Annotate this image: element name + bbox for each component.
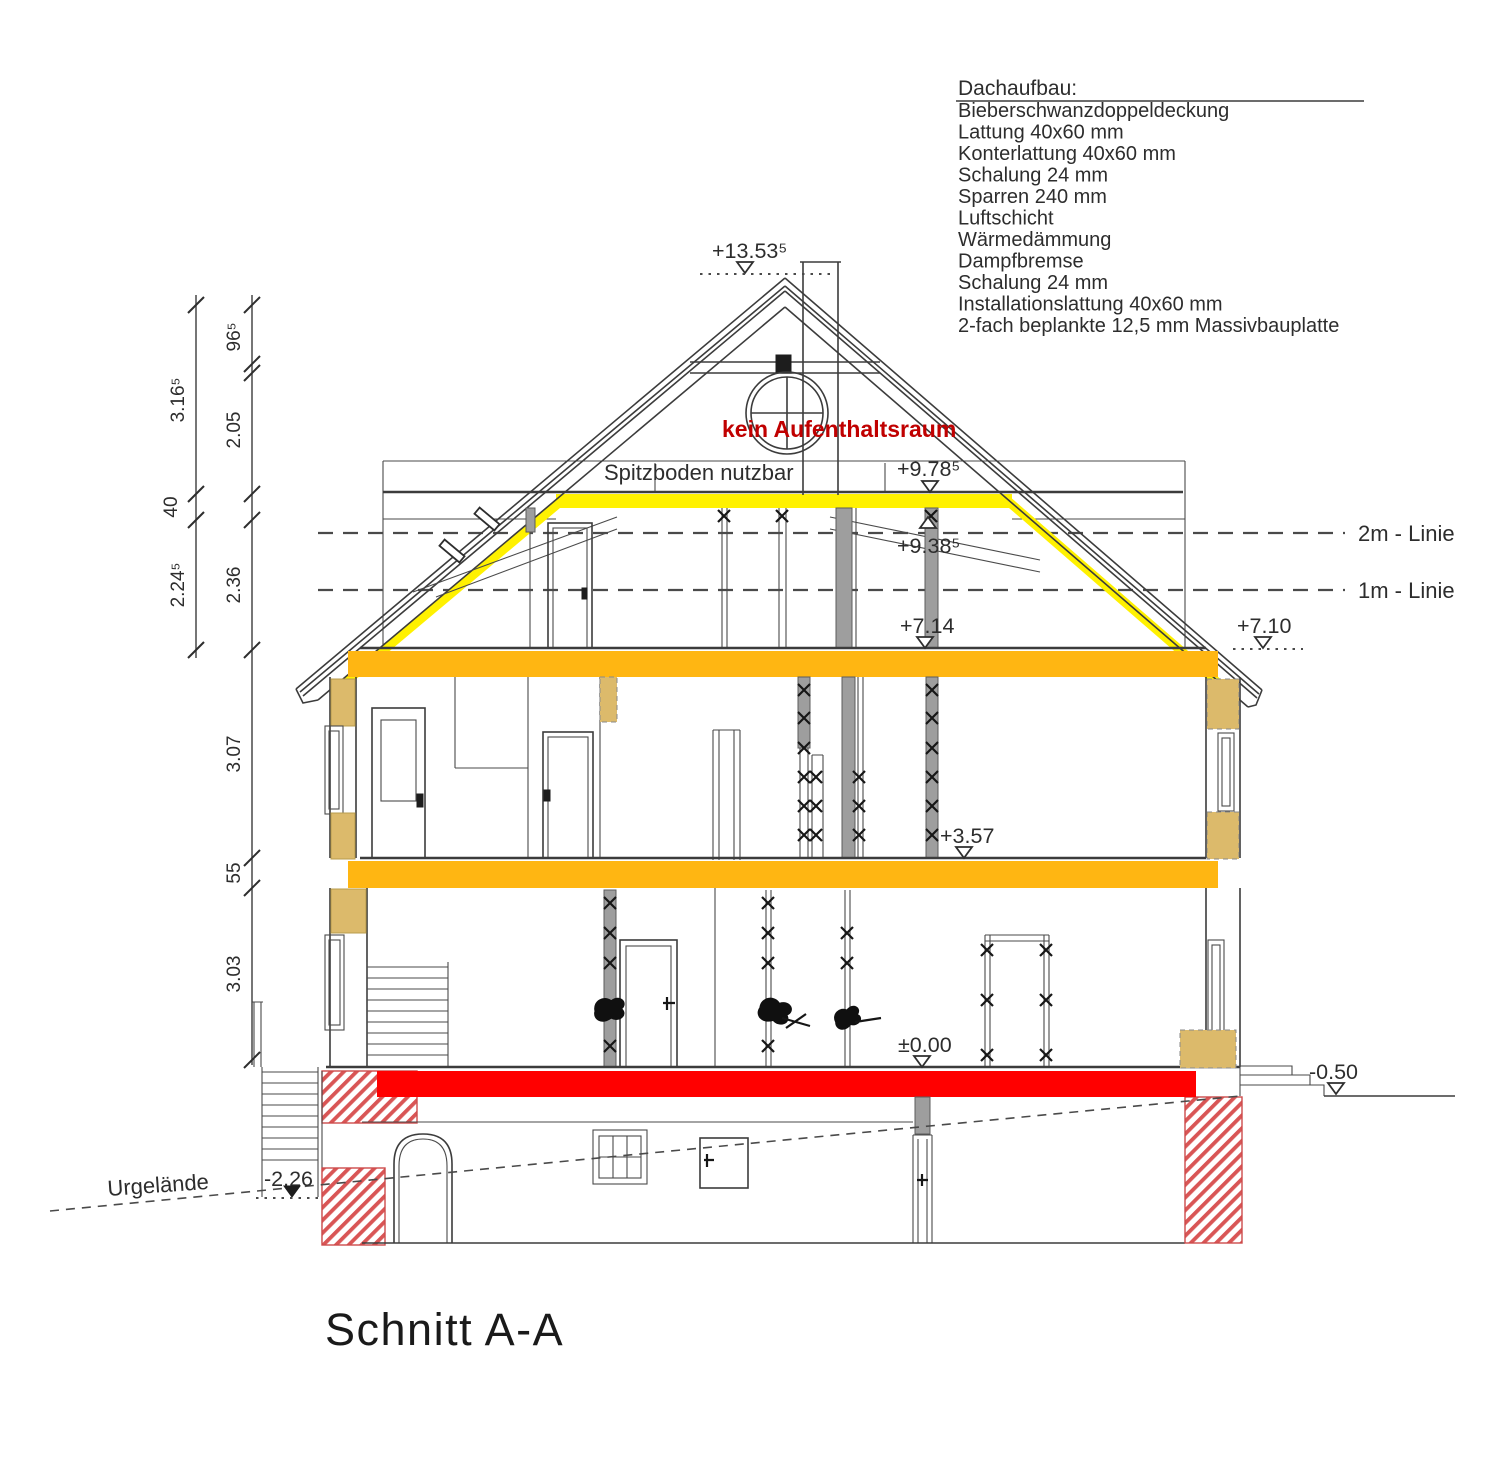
eg-post-1-lines — [766, 890, 771, 1067]
spitzboden-level-marker: +9.78⁵ — [897, 457, 960, 492]
og-right-wall-tan-upper — [1207, 679, 1239, 729]
og-right-wall-tan-lower — [1207, 812, 1239, 859]
og-glazed-door-handle — [417, 794, 423, 807]
dachaufbau-item-3: Konterlattung 40x60 mm — [958, 143, 1176, 165]
og-floor-slab — [348, 861, 1218, 888]
keller-hatch-box-handle — [704, 1154, 714, 1167]
dg-post-x-marks — [718, 510, 937, 522]
dachgeschoss — [526, 508, 938, 648]
keller-arched-door-outer — [394, 1134, 452, 1243]
dg-door-frame — [548, 523, 592, 648]
og-left-wall-tan-upper — [331, 679, 355, 726]
inner-dim-4: 3.07 — [224, 736, 245, 773]
level-triangle-icon — [737, 262, 753, 273]
og-glazed-door-frame — [372, 708, 425, 858]
dg-floor-slab — [348, 651, 1218, 677]
og-open-door-frame — [713, 730, 740, 860]
inner-dim-3: 2.36 — [224, 567, 245, 604]
keller-mid-door — [913, 1135, 932, 1243]
eg-post-2-lines — [845, 890, 850, 1067]
dachaufbau-heading: Dachaufbau: — [958, 77, 1077, 100]
eg-door-handle — [663, 997, 675, 1010]
eg-ink-blob-2 — [756, 995, 793, 1028]
eg-floor — [322, 1067, 1240, 1123]
obergeschoss — [325, 677, 1240, 860]
erdgeschoss — [325, 888, 1240, 1067]
dg-right-level-label: +7.10 — [1237, 614, 1291, 638]
keller-mid-door-handle — [917, 1174, 928, 1186]
level-triangle-icon — [956, 847, 972, 858]
eg-blob-scribbles — [782, 1014, 881, 1028]
og-chimney-section — [842, 677, 855, 858]
og-x-marks — [798, 684, 938, 841]
terrain-right-level-marker: -0.50 — [1309, 1060, 1358, 1094]
og-floor — [348, 858, 1218, 888]
dachaufbau-item-4: Schalung 24 mm — [958, 165, 1108, 187]
level-triangle-icon — [1328, 1083, 1344, 1094]
outer-dim-2: 40 — [161, 496, 182, 517]
inner-dim-5: 55 — [224, 862, 245, 883]
outer-dim-3: 2.24⁵ — [168, 563, 189, 608]
beam-hanger-plate — [776, 355, 791, 373]
dg-floor — [348, 648, 1218, 677]
og-partition-lines — [455, 677, 600, 858]
eg-right-tan-base — [1180, 1030, 1236, 1068]
dachaufbau-item-6: Luftschicht — [958, 208, 1054, 230]
spitzboden-usable-note: Spitzboden nutzbar — [604, 460, 794, 485]
kehlbalken-level-label: +9.38⁵ — [897, 534, 960, 558]
roof-left-outline — [296, 278, 785, 703]
eg-stair — [367, 962, 448, 1067]
dachaufbau-legend: Dachaufbau: Bieberschwanzdoppeldeckung L… — [956, 77, 1364, 337]
dachaufbau-item-2: Lattung 40x60 mm — [958, 122, 1124, 144]
eg-right-window-glass — [1212, 945, 1220, 1035]
background-wall-outline — [383, 461, 1185, 677]
eg-floor-slab — [377, 1071, 1196, 1097]
eg-right-window-frame — [1208, 940, 1224, 1040]
dg-level-marker: +7.14 — [900, 614, 954, 648]
eg-level-label: ±0.00 — [898, 1033, 952, 1057]
og-right-window-frame — [1218, 733, 1234, 811]
one-m-line-label: 1m - Linie — [1358, 578, 1455, 603]
eg-door-leaf — [626, 946, 671, 1067]
original-terrain-line — [50, 1096, 1240, 1211]
ridge-level-marker: +13.53⁵ — [700, 239, 834, 274]
dg-level-label: +7.14 — [900, 614, 954, 638]
keller-entrance-level-marker: -2.26 — [256, 1167, 322, 1198]
og-door-handle — [544, 790, 550, 801]
eg-left-wall-tan — [331, 889, 366, 933]
ridge-level-label: +13.53⁵ — [712, 239, 787, 263]
dg-post-small — [526, 508, 535, 532]
keller-wall-right — [1185, 1097, 1242, 1243]
dachaufbau-item-1: Bieberschwanzdoppeldeckung — [958, 100, 1229, 122]
og-left-wall-tan-lower — [331, 813, 355, 859]
eg-ink-blob-1 — [595, 998, 624, 1021]
section-drawing-sheet: 2m - Linie 1m - Linie kein Aufenthaltsra… — [0, 0, 1500, 1463]
stair-treads — [262, 1072, 318, 1160]
eg-ink-blob-3 — [833, 1005, 863, 1031]
dachaufbau-item-11: 2-fach beplankte 12,5 mm Massivbauplatte — [958, 315, 1339, 337]
terrain-right-level-label: -0.50 — [1309, 1060, 1358, 1084]
og-right-window-glass — [1222, 738, 1230, 806]
dg-right-level-marker: +7.10 — [1233, 614, 1303, 649]
og-left-window-frame — [325, 726, 343, 814]
inner-dim-6: 3.03 — [224, 956, 245, 993]
keller — [322, 1030, 1242, 1245]
og-door-leaf — [548, 737, 588, 858]
dachaufbau-item-9: Schalung 24 mm — [958, 272, 1108, 294]
inner-dim-1: 96⁵ — [224, 322, 245, 351]
dg-door-handle — [582, 588, 587, 599]
kehlbalken-level-marker: +9.38⁵ — [897, 517, 960, 558]
dachaufbau-item-10: Installationslattung 40x60 mm — [958, 294, 1223, 316]
og-level-marker: +3.57 — [940, 824, 994, 858]
two-m-line-label: 2m - Linie — [1358, 521, 1455, 546]
dachaufbau-item-5: Sparren 240 mm — [958, 186, 1107, 208]
level-triangle-filled-icon — [284, 1186, 300, 1197]
level-triangle-icon — [922, 481, 938, 492]
keller-arched-door-inner — [399, 1139, 447, 1243]
og-chimney-tan-block — [600, 677, 617, 722]
section-drawing: 2m - Linie 1m - Linie kein Aufenthaltsra… — [0, 0, 1500, 1463]
og-level-label: +3.57 — [940, 824, 994, 848]
dimension-chains: 3.16⁵ 40 2.24⁵ 96⁵ 2.05 2.36 3.07 55 3.0… — [161, 295, 260, 1068]
dachaufbau-item-8: Dampfbremse — [958, 251, 1084, 273]
dg-chimney-section — [836, 508, 852, 648]
spitzboden-level-label: +9.78⁵ — [897, 457, 960, 481]
no-occupancy-note: kein Aufenthaltsraum — [722, 416, 956, 442]
original-terrain-label: Urgelände — [107, 1169, 210, 1201]
level-triangle-icon — [914, 1056, 930, 1067]
sheet-title: Schnitt A-A — [325, 1304, 564, 1355]
level-triangle-icon — [1255, 637, 1271, 648]
eg-portal-frame — [985, 935, 1049, 1067]
insulation-collar-band — [556, 494, 1012, 508]
dachaufbau-item-7: Wärmedämmung — [958, 229, 1111, 251]
outer-dim-1: 3.16⁵ — [168, 378, 189, 423]
eg-slab-right-end — [1180, 1071, 1196, 1097]
eg-left-window-frame — [325, 935, 344, 1030]
background-walls — [383, 461, 1185, 677]
keller-chimney-block — [915, 1097, 930, 1134]
keller-window-mullions — [599, 1136, 641, 1178]
og-glazed-door-glass — [381, 720, 416, 801]
inner-dim-2: 2.05 — [224, 412, 245, 449]
eg-level-marker: ±0.00 — [898, 1033, 952, 1067]
